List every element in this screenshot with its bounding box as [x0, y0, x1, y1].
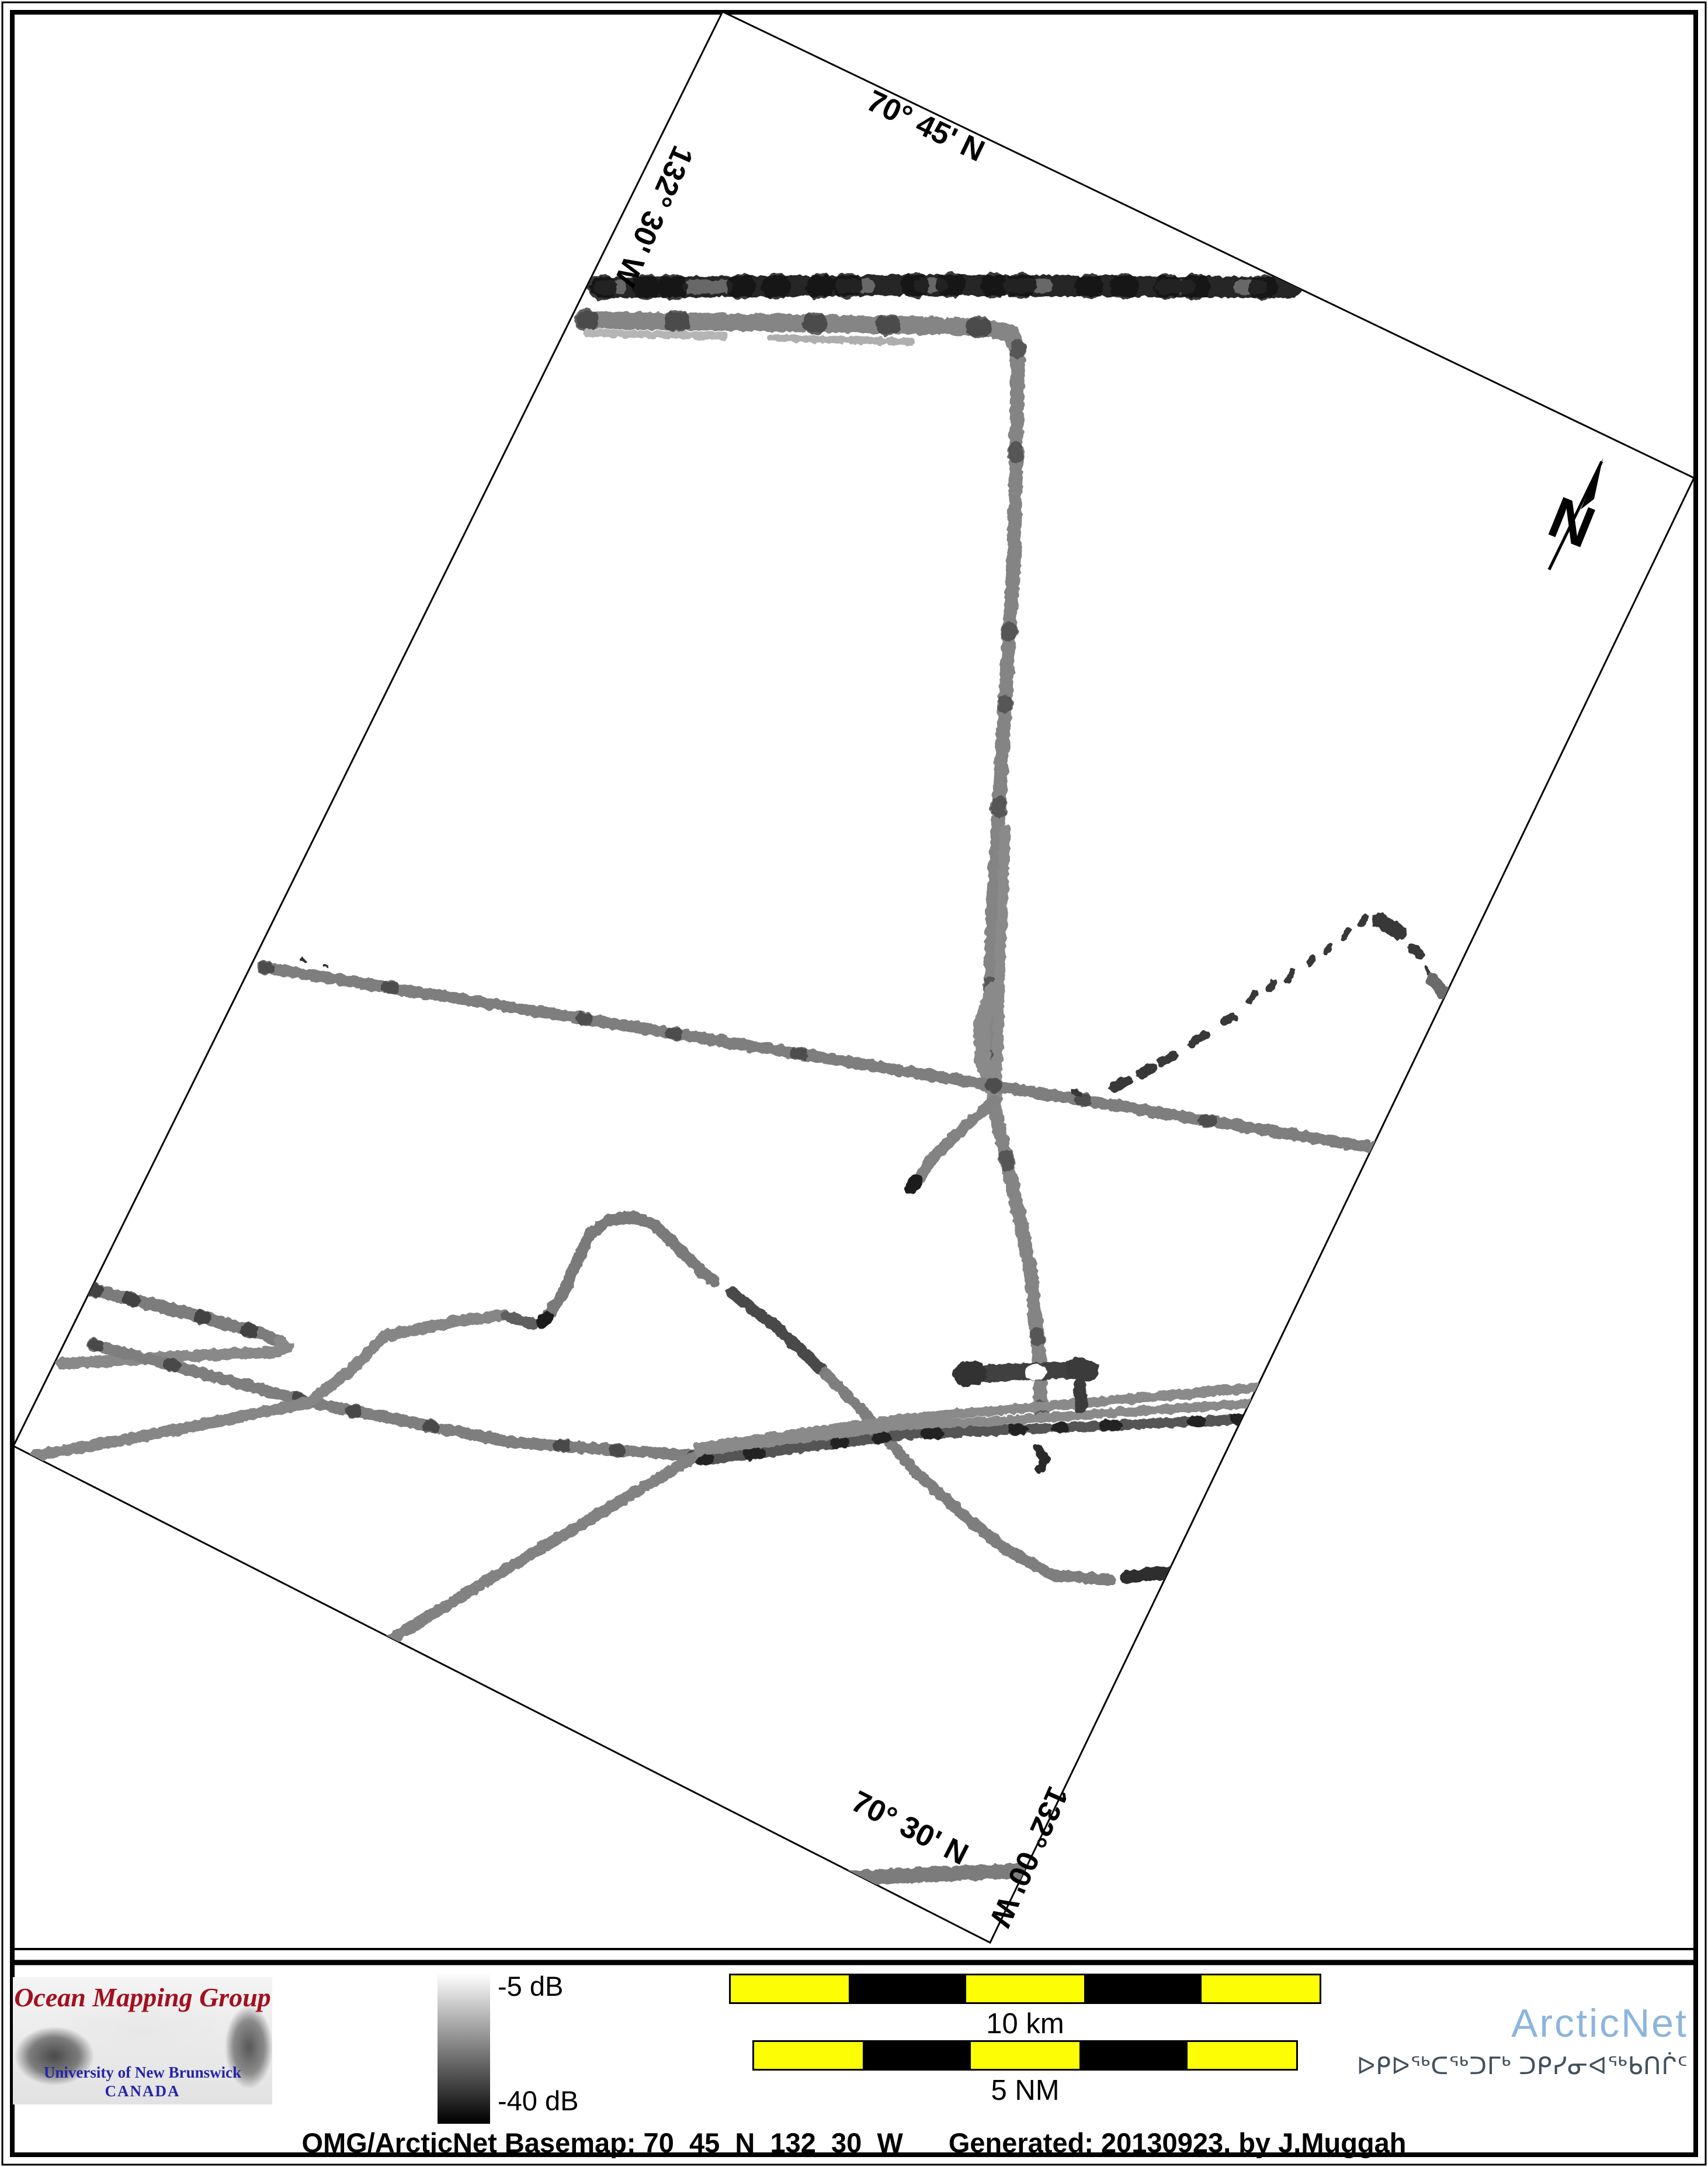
omg-logo-title: Ocean Mapping Group	[13, 1982, 272, 2013]
track-dash-arc-17	[1432, 979, 1444, 993]
track-dash-arc-03	[1140, 1068, 1152, 1074]
omg-logo-country: CANADA	[13, 2082, 272, 2100]
track-dash-arc-08	[1269, 983, 1273, 990]
track-speck-1	[301, 959, 305, 962]
scalebar-segment-2	[966, 1975, 1084, 2002]
colorbar-min-label: -40 dB	[498, 2085, 578, 2117]
caption-generated: Generated: 20130923, by J.Muggah	[949, 2127, 1407, 2158]
scalebar-segment-1	[863, 2042, 971, 2069]
scalebar-segment-0	[731, 1975, 849, 2002]
scalebar-km	[729, 1974, 1321, 2004]
track-dash-arc-07	[1250, 993, 1255, 1000]
scalebar-nm-label: 5 NM	[752, 2074, 1298, 2107]
track-dash-arc-14	[1380, 921, 1400, 932]
track-dash-arc-10	[1310, 957, 1313, 964]
track-dash-arc-09	[1287, 972, 1292, 980]
scalebar-segment-3	[1084, 1975, 1202, 2002]
track-dash-arc-01	[1074, 1091, 1079, 1094]
map-caption: OMG/ArcticNet Basemap: 70_45_N_132_30_WG…	[0, 2127, 1708, 2159]
track-hill-start-tip	[542, 1317, 547, 1322]
track-dash-arc-16	[1426, 969, 1429, 972]
track-dash-arc-15	[1412, 948, 1419, 955]
track-t-bar-blob-right	[1077, 1368, 1088, 1371]
track-dash-arc-13	[1361, 916, 1366, 924]
basemap-page: 70° 45' N 132° 30' W 70° 30' N 132° 00' …	[0, 0, 1708, 2167]
track-speck-2	[325, 965, 327, 967]
track-t-bar-blob-left	[965, 1373, 974, 1374]
track-dash-arc-12	[1344, 930, 1348, 938]
colorbar-max-label: -5 dB	[498, 1970, 563, 2002]
track-top-gray-fringe-1	[587, 333, 724, 336]
track-line-b-dash	[507, 1316, 534, 1324]
track-t-bar-notch	[1033, 1372, 1039, 1372]
scalebar-segment-3	[1079, 2042, 1188, 2069]
arcticnet-name: ArcticNet	[1303, 2000, 1688, 2046]
track-branch-tip	[911, 1181, 916, 1187]
track-dash-arc-06	[1224, 1017, 1234, 1021]
track-top-gray-fringe-2	[771, 338, 911, 342]
backscatter-colorbar	[438, 1973, 490, 2124]
scalebar-segment-4	[1188, 2042, 1296, 2069]
caption-basemap-id: OMG/ArcticNet Basemap: 70_45_N_132_30_W	[302, 2127, 903, 2158]
track-t-stub	[1079, 1386, 1081, 1407]
omg-logo-university: University of New Brunswick	[13, 2064, 272, 2082]
omg-logo: Ocean Mapping Group University of New Br…	[13, 1977, 272, 2104]
arcticnet-logo: ArcticNet ᐅᑭᐅᖅᑕᖅᑐᒥᒃ ᑐᑭᓯᓂᐊᖅᑲᑎᒌᑦ	[1303, 2000, 1688, 2080]
track-dash-arc-02	[1115, 1081, 1127, 1087]
scalebar-segment-4	[1202, 1975, 1320, 2002]
track-dash-arc-04	[1161, 1055, 1174, 1062]
scalebar-km-label: 10 km	[729, 2007, 1321, 2040]
scalebar-segment-0	[754, 2042, 863, 2069]
scalebar-segment-1	[849, 1975, 967, 2002]
track-dark-short-segment	[1126, 1570, 1193, 1577]
arcticnet-inuktitut-text: ᐅᑭᐅᖅᑕᖅᑐᒥᒃ ᑐᑭᓯᓂᐊᖅᑲᑎᒌᑦ	[1303, 2052, 1688, 2080]
scalebar-segment-2	[971, 2042, 1079, 2069]
scalebar-nm	[752, 2040, 1298, 2071]
map-canvas: 70° 45' N 132° 30' W 70° 30' N 132° 00' …	[0, 0, 1708, 2167]
map-border	[13, 12, 1694, 1943]
track-dash-arc-11	[1326, 945, 1329, 952]
